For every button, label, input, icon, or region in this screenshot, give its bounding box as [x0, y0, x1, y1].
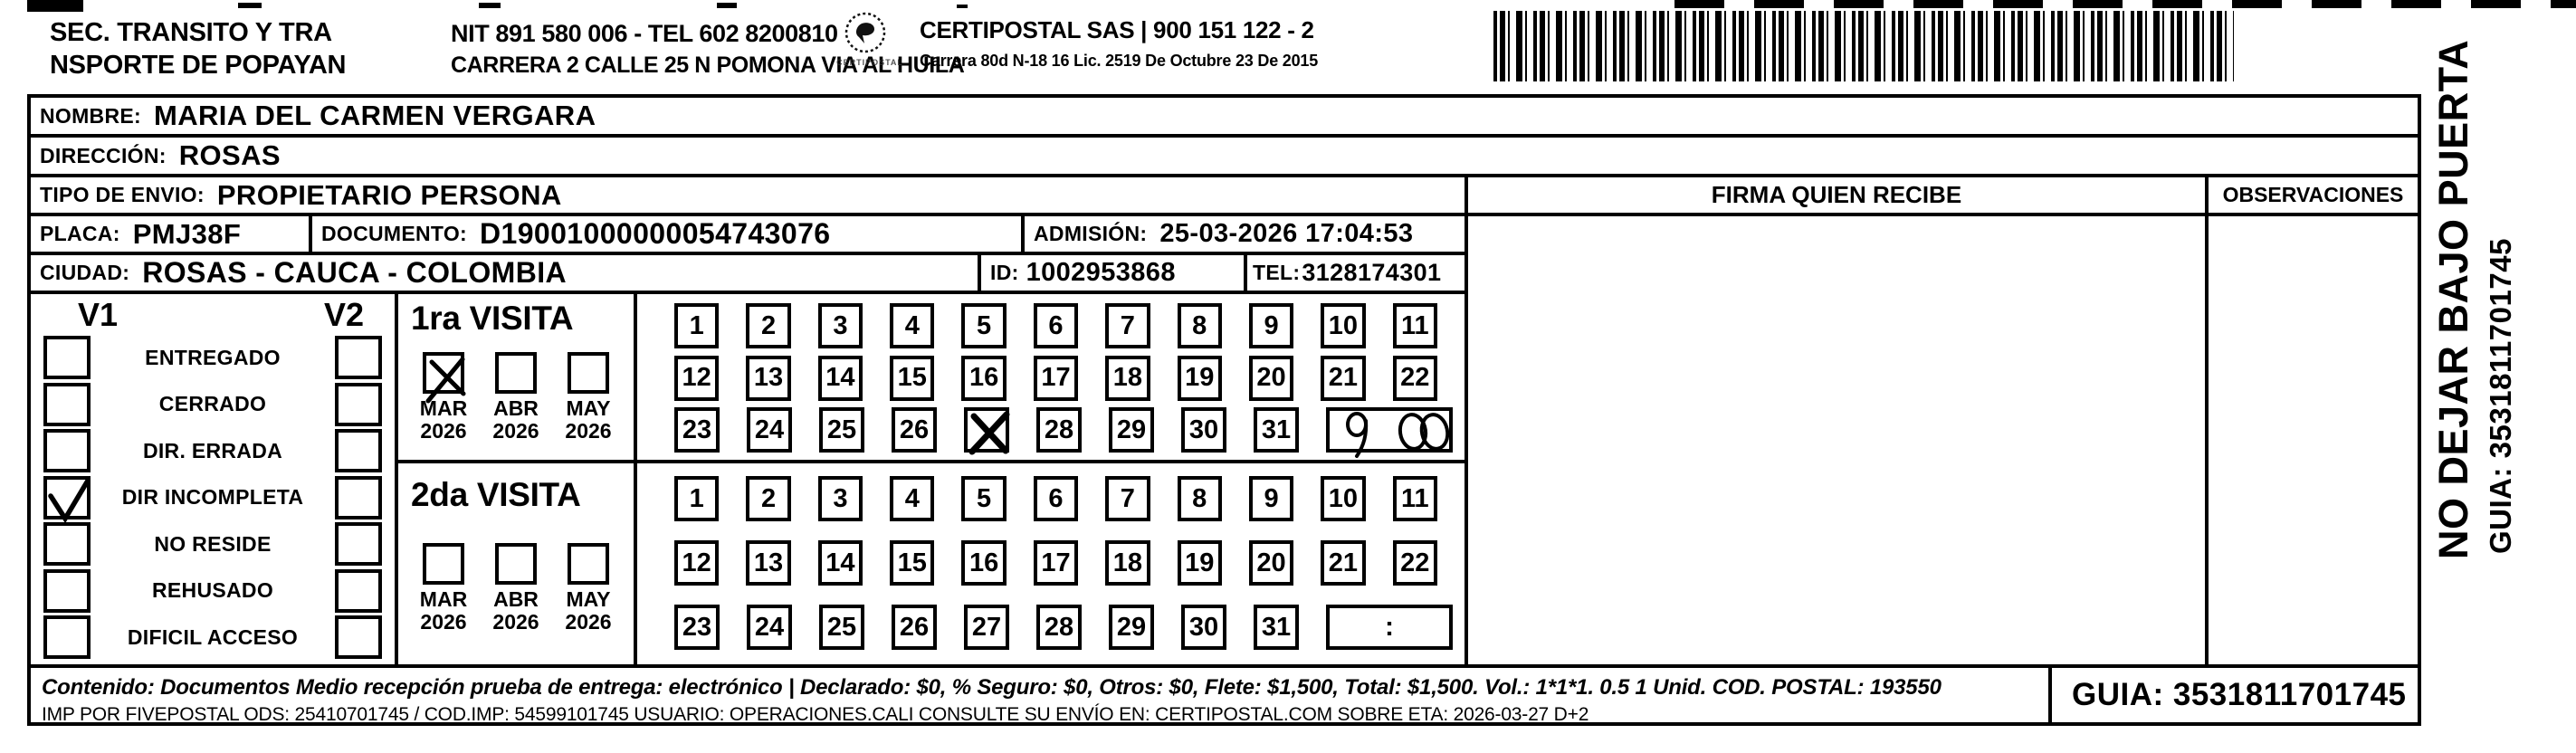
ciudad-cell: CIUDAD: ROSAS - CAUCA - COLOMBIA — [27, 252, 981, 294]
month-checkbox-mar — [423, 543, 464, 585]
v2-checkbox-dir-incompleta — [335, 476, 382, 519]
second-visit-calendar: 1234567891011121314151617181920212223242… — [634, 460, 1468, 668]
tipo-envio-row: TIPO DE ENVIO: PROPIETARIO PERSONA — [27, 174, 1468, 216]
day-cell-15: 15 — [890, 540, 934, 586]
month-checkbox-abr — [495, 543, 537, 585]
sender-org: SEC. TRANSITO Y TRA NSPORTE DE POPAYAN — [50, 16, 346, 81]
day-cell-8: 8 — [1178, 476, 1222, 521]
v1-checkbox-no-reside — [43, 522, 91, 566]
first-visit-calendar: 1234567891011121314151617181920212223242… — [634, 291, 1468, 463]
tipo-envio-value: PROPIETARIO PERSONA — [217, 179, 562, 212]
postal-stamp-icon — [842, 11, 889, 58]
second-visit-months: MAR2026ABR2026MAY2026 — [398, 543, 634, 634]
day-cell-15: 15 — [890, 356, 934, 401]
first-visit-title: 1ra VISITA — [411, 300, 634, 338]
nombre-row: NOMBRE: MARIA DEL CARMEN VERGARA — [27, 94, 2421, 138]
month-checkbox-may — [568, 352, 609, 394]
tel-value: 3128174301 — [1302, 259, 1441, 287]
day-cell-2: 2 — [746, 303, 790, 348]
day-cell-10: 10 — [1321, 476, 1365, 521]
direccion-row: DIRECCIÓN: ROSAS — [27, 134, 2421, 177]
day-cell-24: 24 — [747, 407, 792, 453]
month-label: MAY — [567, 588, 611, 611]
status-col1-header: V1 — [78, 296, 118, 334]
day-cell-31: 31 — [1254, 407, 1299, 453]
scan-artifact — [717, 3, 737, 8]
carrier-info: CERTIPOSTAL SAS | 900 151 122 - 2 Carrer… — [920, 14, 1318, 76]
day-cell-28: 28 — [1036, 605, 1082, 650]
placa-label: PLACA: — [40, 222, 120, 246]
day-cell-27: 27 — [964, 605, 1009, 650]
firma-area — [1465, 213, 2209, 668]
day-cell-11: 11 — [1393, 303, 1437, 348]
documento-cell: DOCUMENTO: D19001000000054743076 — [309, 213, 1025, 255]
v1-checkbox-dificil-acceso — [43, 615, 91, 659]
calendar-row: 1213141516171819202122 — [674, 356, 1465, 401]
day-cell-13: 13 — [746, 356, 790, 401]
day-cell-20: 20 — [1249, 356, 1293, 401]
footer-content-box: Contenido: Documentos Medio recepción pr… — [27, 664, 2052, 726]
status-label-dificil-acceso: DIFICIL ACCESO — [91, 625, 335, 650]
admision-cell: ADMISIÓN: 25-03-2026 17:04:53 — [1021, 213, 1468, 255]
day-cell-16: 16 — [961, 540, 1006, 586]
day-cell-22: 22 — [1393, 356, 1437, 401]
v1-checkbox-cerrado — [43, 383, 91, 426]
day-cell-25: 25 — [819, 407, 864, 453]
side-guia-text: GUIA: 3531811701745 — [2484, 145, 2518, 554]
calendar-row: 2324252628293031 — [674, 407, 1465, 453]
day-cell-1: 1 — [674, 303, 719, 348]
day-cell-4: 4 — [890, 476, 934, 521]
day-cell-16: 16 — [961, 356, 1006, 401]
status-label-entregado: ENTREGADO — [91, 346, 335, 370]
observaciones-header: OBSERVACIONES — [2205, 174, 2421, 216]
second-visit-panel: 2da VISITA MAR2026ABR2026MAY2026 — [395, 460, 637, 668]
carrier-name: CERTIPOSTAL SAS | 900 151 122 - 2 — [920, 14, 1318, 45]
month-year: 2026 — [565, 611, 611, 634]
scan-artifact — [27, 0, 83, 12]
month-checkbox-mar — [423, 352, 464, 394]
observaciones-area — [2205, 213, 2421, 668]
tel-cell: TEL: 3128174301 — [1244, 252, 1468, 294]
v2-checkbox-rehusado — [335, 569, 382, 613]
day-cell-21: 21 — [1321, 356, 1365, 401]
ciudad-label: CIUDAD: — [40, 261, 129, 285]
nombre-label: NOMBRE: — [40, 104, 141, 129]
side-warning-text: NO DEJAR BAJO PUERTA — [2426, 66, 2482, 559]
id-cell: ID: 1002953868 — [978, 252, 1247, 294]
month-year: 2026 — [565, 420, 611, 443]
first-visit-month-may: MAY2026 — [554, 352, 623, 443]
v2-checkbox-cerrado — [335, 383, 382, 426]
month-year: 2026 — [492, 611, 539, 634]
footer-content-line: Contenido: Documentos Medio recepción pr… — [42, 675, 2037, 701]
day-cell-12: 12 — [674, 540, 719, 586]
day-cell-17: 17 — [1034, 356, 1078, 401]
day-cell-31: 31 — [1254, 605, 1299, 650]
v1-checkbox-dir-errada — [43, 429, 91, 472]
placa-value: PMJ38F — [133, 218, 242, 251]
day-cell-19: 19 — [1178, 356, 1222, 401]
second-visit-month-mar: MAR2026 — [409, 543, 478, 634]
status-label-rehusado: REHUSADO — [91, 578, 335, 603]
tipo-envio-label: TIPO DE ENVIO: — [40, 183, 205, 207]
handwritten-time-icon — [1330, 407, 1456, 458]
status-panel: V1 V2 ENTREGADOCERRADODIR. ERRADADIR INC… — [27, 291, 398, 668]
day-cell-4: 4 — [890, 303, 934, 348]
direccion-label: DIRECCIÓN: — [40, 144, 167, 168]
month-year: 2026 — [420, 420, 466, 443]
month-label: MAR — [420, 588, 467, 611]
status-label-no-reside: NO RESIDE — [91, 532, 335, 557]
day-cell-29: 29 — [1109, 407, 1154, 453]
second-visit-title: 2da VISITA — [411, 476, 634, 514]
first-visit-months: MAR2026ABR2026MAY2026 — [398, 352, 634, 443]
v1-checkbox-dir-incompleta — [43, 476, 91, 519]
day-cell-12: 12 — [674, 356, 719, 401]
visit-time-box: : — [1326, 605, 1453, 650]
month-checkbox-abr — [495, 352, 537, 394]
status-label-dir-errada: DIR. ERRADA — [91, 439, 335, 463]
scan-artifact — [238, 3, 262, 8]
day-cell-5: 5 — [961, 303, 1006, 348]
first-visit-month-mar: MAR2026 — [409, 352, 478, 443]
day-cell-7: 7 — [1105, 303, 1150, 348]
day-cell-30: 30 — [1181, 605, 1226, 650]
handwritten-check-icon — [45, 478, 91, 523]
visit-time-box — [1326, 407, 1453, 453]
day-cell-11: 11 — [1393, 476, 1437, 521]
admision-label: ADMISIÓN: — [1034, 222, 1147, 246]
status-label-dir-incompleta: DIR INCOMPLETA — [91, 485, 335, 510]
v1-checkbox-entregado — [43, 336, 91, 379]
status-row-no-reside: NO RESIDE — [43, 522, 382, 566]
status-row-cerrado: CERRADO — [43, 383, 382, 426]
sender-org-line1: SEC. TRANSITO Y TRA — [50, 16, 346, 49]
day-cell-8: 8 — [1178, 303, 1222, 348]
day-cell-26: 26 — [892, 605, 937, 650]
day-cell-3: 3 — [818, 476, 863, 521]
day-cell-22: 22 — [1393, 540, 1437, 586]
day-cell-19: 19 — [1178, 540, 1222, 586]
status-rows: ENTREGADOCERRADODIR. ERRADADIR INCOMPLET… — [31, 336, 395, 659]
month-label: ABR — [493, 397, 539, 420]
status-col2-header: V2 — [324, 296, 364, 334]
status-row-dir-errada: DIR. ERRADA — [43, 429, 382, 472]
day-cell-21: 21 — [1321, 540, 1365, 586]
scan-artifact-dashes — [1674, 0, 2576, 8]
status-row-dir-incompleta: DIR INCOMPLETA — [43, 476, 382, 519]
waybill-document: SEC. TRANSITO Y TRA NSPORTE DE POPAYAN N… — [0, 0, 2576, 753]
status-row-entregado: ENTREGADO — [43, 336, 382, 379]
carrier-address: Carrera 80d N-18 16 Lic. 2519 De Octubre… — [920, 45, 1318, 76]
sender-org-line2: NSPORTE DE POPAYAN — [50, 49, 346, 81]
status-row-rehusado: REHUSADO — [43, 569, 382, 613]
certipostal-logo — [842, 11, 889, 58]
calendar-row: 1213141516171819202122 — [674, 540, 1465, 586]
day-cell-14: 14 — [818, 356, 863, 401]
v2-checkbox-dificil-acceso — [335, 615, 382, 659]
calendar-row: 1234567891011 — [674, 303, 1465, 348]
day-cell-6: 6 — [1034, 303, 1078, 348]
day-cell-13: 13 — [746, 540, 790, 586]
day-cell-26: 26 — [892, 407, 937, 453]
placa-cell: PLACA: PMJ38F — [27, 213, 312, 255]
v2-checkbox-no-reside — [335, 522, 382, 566]
id-value: 1002953868 — [1026, 258, 1176, 288]
footer-guia-box: GUIA: 3531811701745 — [2048, 664, 2421, 726]
day-cell-28: 28 — [1036, 407, 1082, 453]
footer-imp-line: IMP POR FIVEPOSTAL ODS: 25410701745 / CO… — [42, 704, 2037, 726]
status-label-cerrado: CERRADO — [91, 392, 335, 416]
month-year: 2026 — [420, 611, 466, 634]
v2-checkbox-entregado — [335, 336, 382, 379]
tracking-barcode — [1493, 11, 2234, 81]
second-visit-month-may: MAY2026 — [554, 543, 623, 634]
day-cell-18: 18 — [1105, 356, 1150, 401]
handwritten-x-icon — [966, 409, 1011, 454]
firma-header: FIRMA QUIEN RECIBE — [1465, 174, 2209, 216]
month-label: ABR — [493, 588, 539, 611]
scan-artifact — [957, 5, 968, 8]
status-row-dificil-acceso: DIFICIL ACCESO — [43, 615, 382, 659]
day-cell-9: 9 — [1249, 303, 1293, 348]
day-cell-30: 30 — [1181, 407, 1226, 453]
documento-label: DOCUMENTO: — [321, 222, 467, 246]
day-cell-20: 20 — [1249, 540, 1293, 586]
day-cell-14: 14 — [818, 540, 863, 586]
day-cell-7: 7 — [1105, 476, 1150, 521]
day-cell-5: 5 — [961, 476, 1006, 521]
logo-caption: CERTIPOSTAL — [820, 58, 920, 67]
tel-label: TEL: — [1253, 261, 1300, 285]
second-visit-month-abr: ABR2026 — [482, 543, 550, 634]
day-cell-18: 18 — [1105, 540, 1150, 586]
day-cell-27 — [964, 407, 1009, 453]
calendar-row: 232425262728293031: — [674, 605, 1465, 650]
nombre-value: MARIA DEL CARMEN VERGARA — [154, 100, 596, 132]
admision-value: 25-03-2026 17:04:53 — [1159, 219, 1413, 249]
v1-checkbox-rehusado — [43, 569, 91, 613]
day-cell-6: 6 — [1034, 476, 1078, 521]
month-year: 2026 — [492, 420, 539, 443]
day-cell-3: 3 — [818, 303, 863, 348]
day-cell-2: 2 — [746, 476, 790, 521]
day-cell-24: 24 — [747, 605, 792, 650]
ciudad-value: ROSAS - CAUCA - COLOMBIA — [142, 256, 567, 290]
first-visit-month-abr: ABR2026 — [482, 352, 550, 443]
day-cell-25: 25 — [819, 605, 864, 650]
day-cell-29: 29 — [1109, 605, 1154, 650]
id-label: ID: — [990, 261, 1019, 285]
scan-artifact — [479, 3, 501, 8]
calendar-row: 1234567891011 — [674, 476, 1465, 521]
v2-checkbox-dir-errada — [335, 429, 382, 472]
handwritten-x-icon — [425, 354, 470, 399]
first-visit-panel: 1ra VISITA MAR2026ABR2026MAY2026 — [395, 291, 637, 463]
day-cell-1: 1 — [674, 476, 719, 521]
documento-value: D19001000000054743076 — [480, 217, 830, 251]
day-cell-9: 9 — [1249, 476, 1293, 521]
direccion-value: ROSAS — [179, 139, 281, 172]
month-checkbox-may — [568, 543, 609, 585]
month-label: MAY — [567, 397, 611, 420]
day-cell-10: 10 — [1321, 303, 1365, 348]
day-cell-23: 23 — [674, 407, 720, 453]
day-cell-23: 23 — [674, 605, 720, 650]
day-cell-17: 17 — [1034, 540, 1078, 586]
